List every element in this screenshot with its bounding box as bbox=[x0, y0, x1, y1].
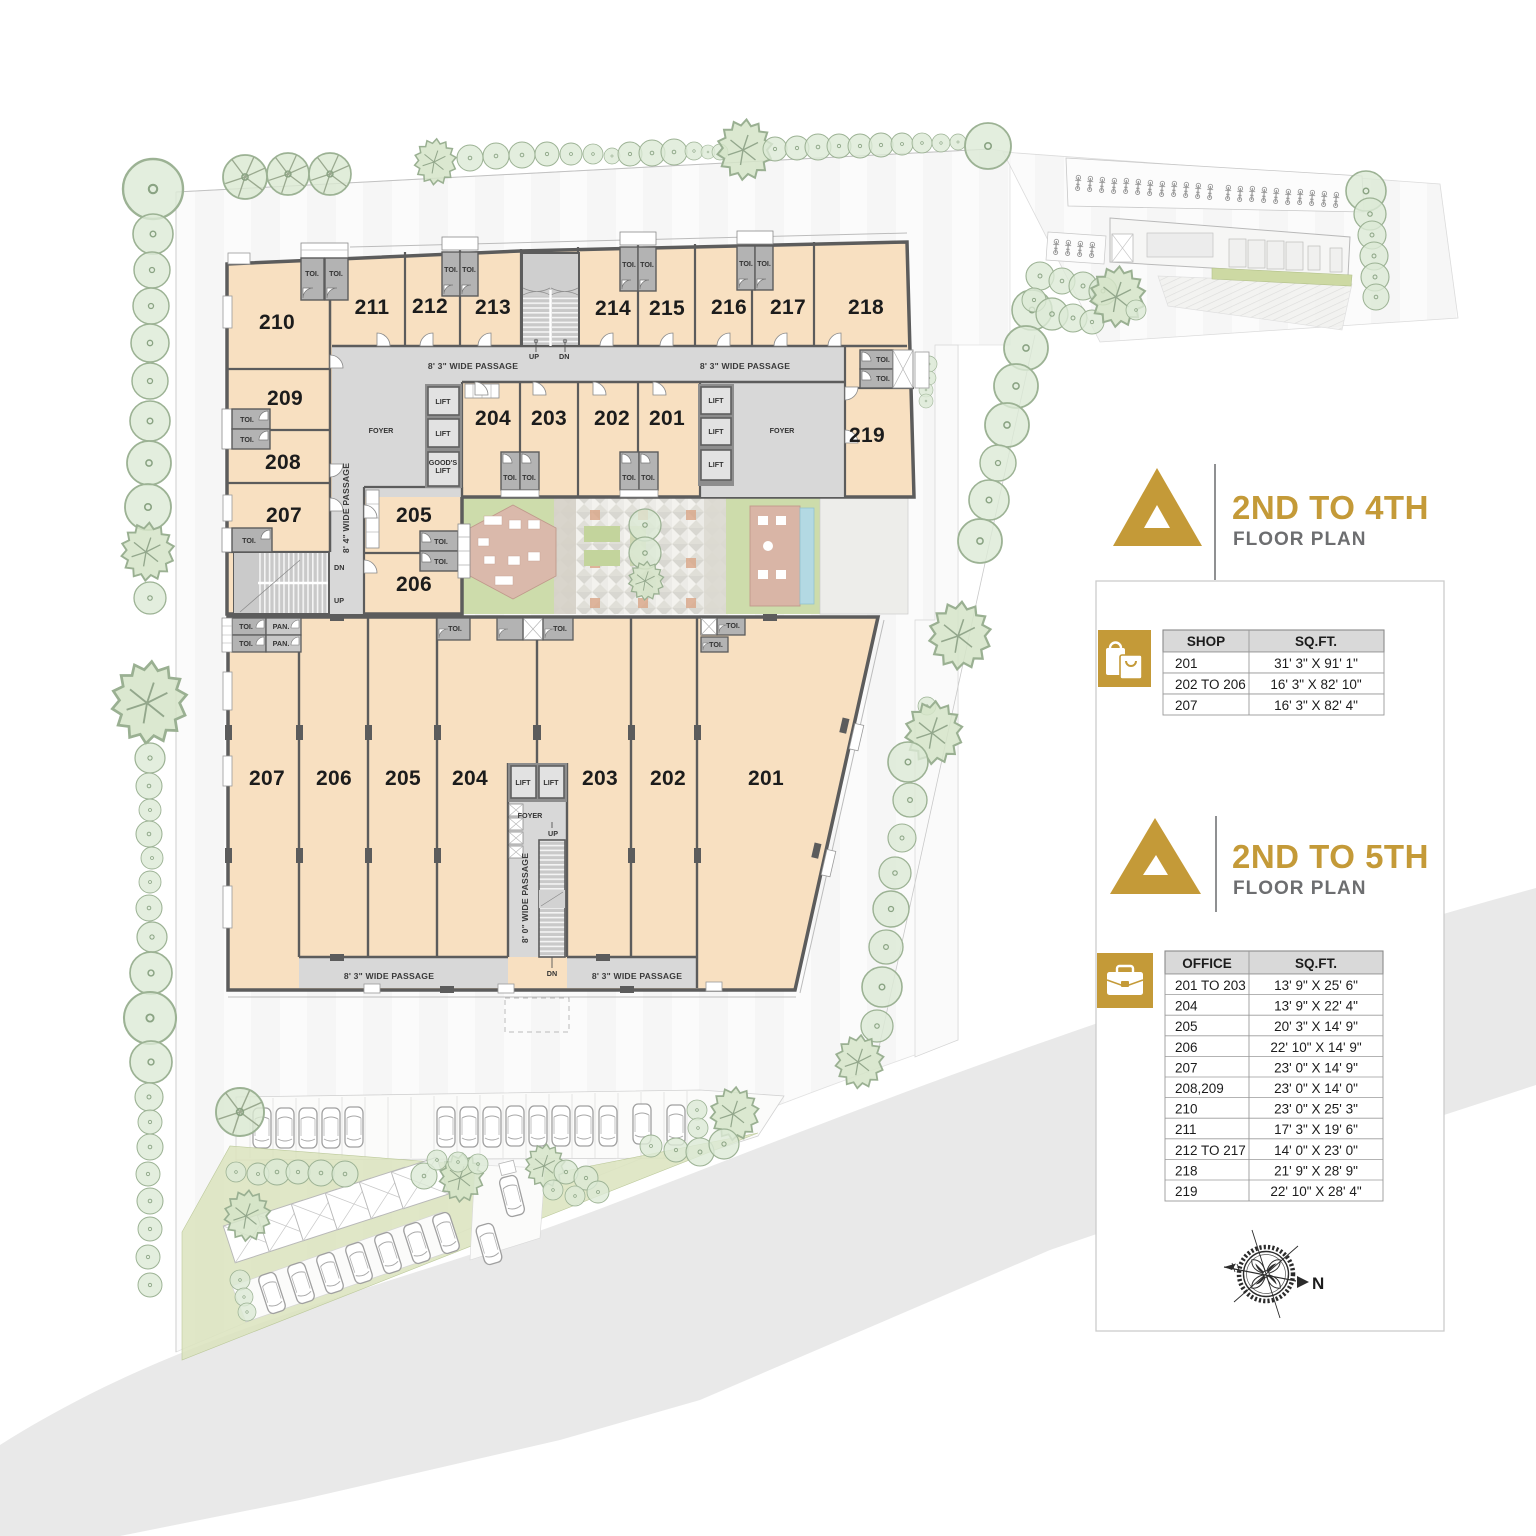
svg-text:TOI.: TOI. bbox=[622, 473, 636, 482]
svg-text:TOI.: TOI. bbox=[305, 269, 319, 278]
svg-text:TOI.: TOI. bbox=[239, 639, 253, 648]
svg-text:TOI.: TOI. bbox=[553, 624, 567, 633]
svg-text:202: 202 bbox=[650, 767, 686, 790]
svg-text:OFFICE: OFFICE bbox=[1182, 956, 1232, 971]
svg-text:208: 208 bbox=[265, 451, 301, 474]
svg-text:TOI.: TOI. bbox=[462, 265, 476, 274]
svg-text:203: 203 bbox=[582, 767, 618, 790]
svg-text:202 TO 206: 202 TO 206 bbox=[1175, 677, 1246, 692]
svg-text:209: 209 bbox=[267, 387, 303, 410]
svg-text:TOI.: TOI. bbox=[876, 374, 890, 383]
svg-text:204: 204 bbox=[1175, 999, 1198, 1014]
svg-text:204: 204 bbox=[452, 767, 488, 790]
svg-text:205: 205 bbox=[1175, 1019, 1198, 1034]
svg-text:TOI.: TOI. bbox=[709, 640, 723, 649]
svg-text:DN: DN bbox=[559, 352, 569, 361]
svg-text:216: 216 bbox=[711, 296, 747, 319]
svg-text:207: 207 bbox=[266, 504, 302, 527]
svg-text:218: 218 bbox=[1175, 1163, 1198, 1178]
svg-text:21' 9" X 28' 9": 21' 9" X 28' 9" bbox=[1274, 1163, 1358, 1178]
svg-text:208,209: 208,209 bbox=[1175, 1081, 1224, 1096]
svg-text:201: 201 bbox=[649, 407, 685, 430]
svg-text:SHOP: SHOP bbox=[1187, 634, 1225, 649]
svg-text:8' 0" WIDE PASSAGE: 8' 0" WIDE PASSAGE bbox=[520, 853, 530, 943]
svg-text:201: 201 bbox=[1175, 656, 1198, 671]
svg-text:SQ.FT.: SQ.FT. bbox=[1295, 634, 1337, 649]
svg-text:TOI.: TOI. bbox=[434, 537, 448, 546]
svg-text:207: 207 bbox=[1175, 698, 1198, 713]
svg-text:UP: UP bbox=[529, 352, 539, 361]
svg-text:UP: UP bbox=[548, 829, 558, 838]
svg-text:DN: DN bbox=[334, 563, 344, 572]
svg-text:LIFT: LIFT bbox=[515, 778, 531, 787]
svg-text:213: 213 bbox=[475, 296, 511, 319]
svg-text:TOI.: TOI. bbox=[240, 415, 254, 424]
svg-text:212: 212 bbox=[412, 295, 448, 318]
svg-text:23' 0" X 14' 9": 23' 0" X 14' 9" bbox=[1274, 1060, 1358, 1075]
svg-text:16' 3" X 82' 4": 16' 3" X 82' 4" bbox=[1274, 698, 1358, 713]
svg-text:201 TO 203: 201 TO 203 bbox=[1175, 978, 1246, 993]
svg-text:LIFT: LIFT bbox=[708, 396, 724, 405]
svg-text:LIFT: LIFT bbox=[435, 429, 451, 438]
svg-text:14' 0" X 23' 0": 14' 0" X 23' 0" bbox=[1274, 1143, 1358, 1158]
svg-text:212 TO 217: 212 TO 217 bbox=[1175, 1143, 1246, 1158]
svg-text:LIFT: LIFT bbox=[435, 397, 451, 406]
svg-text:20' 3" X 14' 9": 20' 3" X 14' 9" bbox=[1274, 1019, 1358, 1034]
svg-text:214: 214 bbox=[595, 297, 631, 320]
svg-text:8' 3" WIDE PASSAGE: 8' 3" WIDE PASSAGE bbox=[344, 971, 434, 981]
svg-text:TOI.: TOI. bbox=[876, 355, 890, 364]
svg-text:2ND TO 4TH: 2ND TO 4TH bbox=[1232, 489, 1429, 526]
svg-text:FOYER: FOYER bbox=[369, 426, 395, 435]
svg-text:218: 218 bbox=[848, 296, 884, 319]
svg-text:PAN.: PAN. bbox=[273, 622, 290, 631]
svg-text:FLOOR PLAN: FLOOR PLAN bbox=[1233, 878, 1367, 899]
svg-text:207: 207 bbox=[1175, 1060, 1198, 1075]
svg-text:206: 206 bbox=[1175, 1040, 1198, 1055]
svg-text:UP: UP bbox=[334, 596, 344, 605]
svg-text:217: 217 bbox=[770, 296, 806, 319]
svg-text:PAN.: PAN. bbox=[273, 639, 290, 648]
svg-text:204: 204 bbox=[475, 407, 511, 430]
svg-text:210: 210 bbox=[259, 311, 295, 334]
svg-text:219: 219 bbox=[849, 424, 885, 447]
svg-text:8' 3" WIDE PASSAGE: 8' 3" WIDE PASSAGE bbox=[592, 971, 682, 981]
svg-text:TOI.: TOI. bbox=[239, 622, 253, 631]
svg-text:22' 10" X 28' 4": 22' 10" X 28' 4" bbox=[1270, 1184, 1362, 1199]
svg-text:FLOOR PLAN: FLOOR PLAN bbox=[1233, 529, 1367, 550]
svg-text:211: 211 bbox=[1175, 1122, 1197, 1137]
svg-text:206: 206 bbox=[396, 573, 432, 596]
svg-text:TOI.: TOI. bbox=[622, 260, 636, 269]
svg-text:202: 202 bbox=[594, 407, 630, 430]
svg-text:13' 9" X 22' 4": 13' 9" X 22' 4" bbox=[1274, 999, 1358, 1014]
svg-text:13' 9" X 25' 6": 13' 9" X 25' 6" bbox=[1274, 978, 1358, 993]
svg-text:23' 0" X 14' 0": 23' 0" X 14' 0" bbox=[1274, 1081, 1358, 1096]
svg-text:TOI.: TOI. bbox=[757, 259, 771, 268]
svg-text:TOI.: TOI. bbox=[726, 621, 740, 630]
svg-text:FOYER: FOYER bbox=[770, 426, 796, 435]
svg-text:TOI.: TOI. bbox=[444, 265, 458, 274]
svg-text:FOYER: FOYER bbox=[518, 811, 544, 820]
svg-text:215: 215 bbox=[649, 297, 685, 320]
svg-text:205: 205 bbox=[385, 767, 421, 790]
svg-text:TOI.: TOI. bbox=[640, 260, 654, 269]
svg-text:TOI.: TOI. bbox=[329, 269, 343, 278]
svg-text:TOI.: TOI. bbox=[240, 435, 254, 444]
svg-text:TOI.: TOI. bbox=[503, 473, 517, 482]
svg-text:8' 3" WIDE PASSAGE: 8' 3" WIDE PASSAGE bbox=[700, 361, 790, 371]
svg-text:206: 206 bbox=[316, 767, 352, 790]
svg-text:TOI.: TOI. bbox=[448, 624, 462, 633]
svg-text:23' 0" X 25' 3": 23' 0" X 25' 3" bbox=[1274, 1102, 1358, 1117]
svg-text:211: 211 bbox=[355, 296, 390, 319]
svg-text:210: 210 bbox=[1175, 1102, 1198, 1117]
svg-text:TOI.: TOI. bbox=[641, 473, 655, 482]
svg-text:201: 201 bbox=[748, 767, 784, 790]
svg-text:22' 10" X 14' 9": 22' 10" X 14' 9" bbox=[1270, 1040, 1362, 1055]
svg-text:31' 3" X 91' 1": 31' 3" X 91' 1" bbox=[1274, 656, 1358, 671]
svg-text:TOI.: TOI. bbox=[242, 536, 256, 545]
svg-text:8' 3" WIDE PASSAGE: 8' 3" WIDE PASSAGE bbox=[428, 361, 518, 371]
svg-text:LIFT: LIFT bbox=[708, 460, 724, 469]
svg-text:TOI.: TOI. bbox=[522, 473, 536, 482]
svg-text:205: 205 bbox=[396, 504, 432, 527]
svg-text:TOI.: TOI. bbox=[434, 557, 448, 566]
svg-text:16' 3" X 82' 10": 16' 3" X 82' 10" bbox=[1270, 677, 1362, 692]
svg-text:TOI.: TOI. bbox=[739, 259, 753, 268]
svg-text:203: 203 bbox=[531, 407, 567, 430]
svg-text:DN: DN bbox=[547, 969, 557, 978]
svg-text:2ND TO 5TH: 2ND TO 5TH bbox=[1232, 838, 1429, 875]
svg-text:LIFT: LIFT bbox=[708, 427, 724, 436]
svg-text:SQ.FT.: SQ.FT. bbox=[1295, 956, 1337, 971]
svg-text:8' 4" WIDE PASSAGE: 8' 4" WIDE PASSAGE bbox=[341, 463, 351, 553]
svg-text:207: 207 bbox=[249, 767, 285, 790]
svg-text:219: 219 bbox=[1175, 1184, 1198, 1199]
svg-text:LIFT: LIFT bbox=[543, 778, 559, 787]
svg-text:N: N bbox=[1312, 1274, 1324, 1293]
svg-text:LIFT: LIFT bbox=[435, 466, 451, 475]
svg-text:17' 3" X 19' 6": 17' 3" X 19' 6" bbox=[1274, 1122, 1358, 1137]
